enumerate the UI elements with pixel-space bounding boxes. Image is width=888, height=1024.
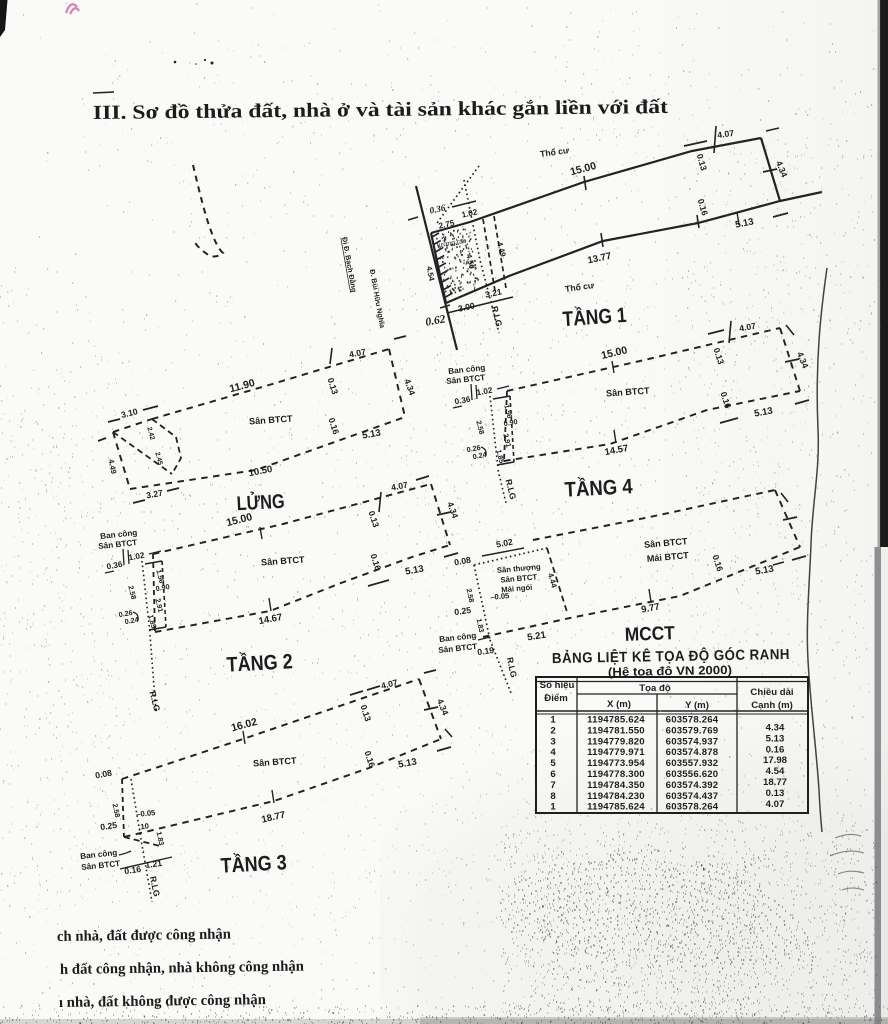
svg-text:ı nhà, đất không được công nhậ: ı nhà, đất không được công nhận [59,992,267,1011]
svg-text:ch nhà, đất được công nhận: ch nhà, đất được công nhận [57,927,232,945]
svg-text:h đất công nhận, nhà không côn: h đất công nhận, nhà không công nhận [60,959,305,978]
svg-text:TẦNG 3: TẦNG 3 [220,851,287,877]
svg-text:TẦNG 2: TẦNG 2 [226,650,293,676]
svg-text:Số hiệu: Số hiệu [540,680,575,691]
svg-text:.10: .10 [138,821,150,831]
svg-text:LỬNG: LỬNG [236,489,285,515]
